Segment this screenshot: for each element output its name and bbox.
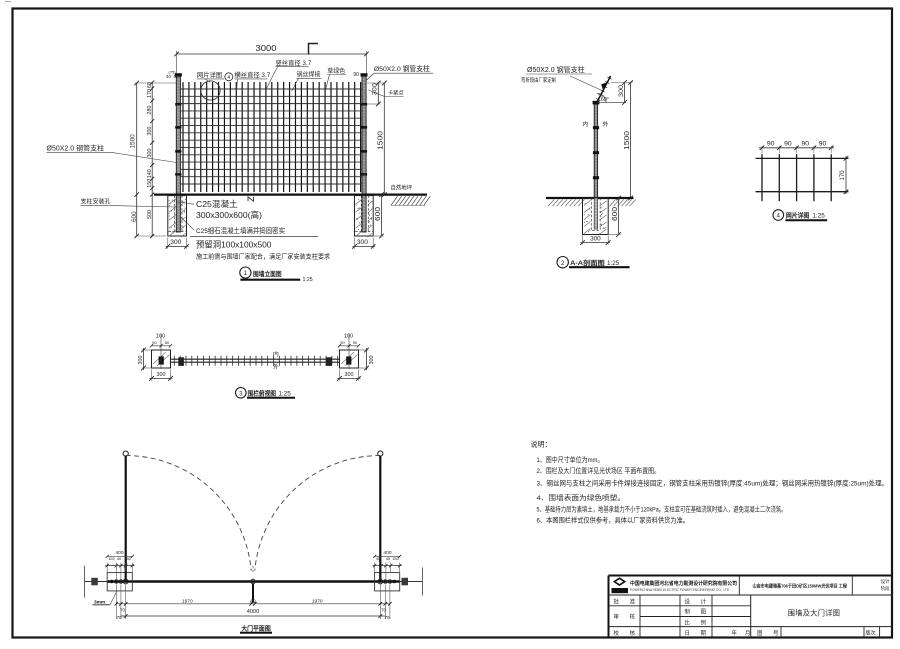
svg-text:批 准: 批 准 bbox=[614, 597, 640, 605]
svg-text:85: 85 bbox=[376, 556, 380, 561]
svg-text:内: 内 bbox=[273, 350, 279, 358]
svg-text:竖丝直径 3.7: 竖丝直径 3.7 bbox=[276, 58, 312, 67]
svg-text:300x300x600(高): 300x300x600(高) bbox=[196, 209, 262, 220]
svg-text:1500: 1500 bbox=[378, 131, 385, 150]
svg-text:150: 150 bbox=[108, 556, 115, 561]
svg-text:4: 4 bbox=[227, 75, 230, 81]
svg-text:月: 月 bbox=[745, 630, 750, 637]
svg-text:300: 300 bbox=[138, 356, 144, 365]
svg-text:170: 170 bbox=[147, 89, 153, 98]
svg-text:90: 90 bbox=[819, 140, 827, 147]
svg-text:60: 60 bbox=[250, 598, 256, 604]
svg-text:300: 300 bbox=[618, 84, 625, 97]
svg-text:50: 50 bbox=[353, 340, 358, 345]
svg-text:150: 150 bbox=[147, 179, 153, 188]
svg-text:40: 40 bbox=[166, 74, 171, 79]
svg-text:1:25: 1:25 bbox=[813, 213, 826, 220]
svg-text:Ø50X2.0 钢管支柱: Ø50X2.0 钢管支柱 bbox=[527, 65, 585, 74]
svg-text:草绿色: 草绿色 bbox=[327, 67, 345, 75]
svg-text:300: 300 bbox=[345, 372, 354, 378]
svg-text:外: 外 bbox=[603, 120, 609, 128]
svg-text:围墙及大门详图: 围墙及大门详图 bbox=[788, 609, 840, 618]
svg-text:1: 1 bbox=[244, 270, 248, 277]
svg-text:90: 90 bbox=[801, 140, 809, 147]
svg-text:2: 2 bbox=[561, 260, 565, 267]
svg-text:钢丝焊接: 钢丝焊接 bbox=[297, 71, 321, 79]
svg-text:Ø50X2.0 钢管支柱: Ø50X2.0 钢管支柱 bbox=[374, 64, 430, 73]
svg-text:300: 300 bbox=[147, 127, 153, 136]
svg-text:大门平面图: 大门平面图 bbox=[241, 623, 270, 632]
svg-text:100: 100 bbox=[344, 334, 353, 340]
svg-text:设计: 设计 bbox=[881, 578, 890, 585]
svg-text:85: 85 bbox=[126, 556, 130, 561]
svg-text:60: 60 bbox=[174, 74, 179, 79]
svg-text:网片详图: 网片详图 bbox=[197, 70, 222, 79]
svg-text:150: 150 bbox=[392, 556, 399, 561]
svg-text:90: 90 bbox=[767, 140, 775, 147]
svg-text:90: 90 bbox=[784, 140, 792, 147]
svg-text:60°: 60° bbox=[601, 97, 609, 103]
svg-text:施工前需与围墙厂家配合，满足厂家安装支柱要求: 施工前需与围墙厂家配合，满足厂家安装支柱要求 bbox=[196, 251, 331, 260]
svg-text:50: 50 bbox=[165, 340, 170, 345]
svg-text:1、图中尺寸单位为mm。: 1、图中尺寸单位为mm。 bbox=[537, 455, 604, 464]
svg-text:设 计: 设 计 bbox=[685, 597, 711, 605]
svg-text:制 图: 制 图 bbox=[685, 608, 711, 616]
svg-text:70: 70 bbox=[116, 615, 122, 620]
svg-text:横丝直径 3.7: 横丝直径 3.7 bbox=[235, 70, 271, 79]
svg-text:预留洞100x100x500: 预留洞100x100x500 bbox=[196, 240, 272, 250]
svg-text:300: 300 bbox=[147, 149, 153, 158]
svg-text:审 核: 审 核 bbox=[614, 613, 640, 621]
svg-text:山金市电建雅基706于田D矿区150MW光伏项目 工程: 山金市电建雅基706于田D矿区150MW光伏项目 工程 bbox=[753, 582, 848, 589]
svg-text:POWERCHINA HEBEI ELECTRIC POWE: POWERCHINA HEBEI ELECTRIC POWER ENGINEER… bbox=[630, 588, 730, 592]
svg-text:300: 300 bbox=[357, 239, 368, 246]
svg-text:1970: 1970 bbox=[312, 598, 323, 604]
svg-text:支柱安装孔: 支柱安装孔 bbox=[81, 197, 111, 205]
svg-text:1970: 1970 bbox=[182, 598, 193, 604]
svg-text:1:25: 1:25 bbox=[607, 260, 620, 267]
svg-text:300: 300 bbox=[372, 82, 378, 95]
svg-text:400: 400 bbox=[383, 550, 391, 556]
svg-text:600: 600 bbox=[612, 207, 619, 221]
svg-text:比 例: 比 例 bbox=[685, 618, 711, 626]
svg-text:140: 140 bbox=[147, 169, 153, 178]
svg-text:图 号: 图 号 bbox=[757, 629, 783, 637]
svg-text:版次: 版次 bbox=[866, 630, 876, 637]
svg-text:C25细石混凝土填满并捣固密实: C25细石混凝土填满并捣固密实 bbox=[196, 226, 285, 235]
svg-text:5、基础持力层为素填土，地基承载力不小于120kPa。支柱宜: 5、基础持力层为素填土，地基承载力不小于120kPa。支柱宜可在基础浇筑时插入，… bbox=[537, 505, 787, 514]
svg-text:Ø50X2.0 钢管支柱: Ø50X2.0 钢管支柱 bbox=[47, 144, 105, 153]
svg-text:围栏俯视图: 围栏俯视图 bbox=[248, 388, 277, 397]
svg-text:400: 400 bbox=[115, 550, 123, 556]
svg-text:3、钢丝网与支柱之间采用卡件焊接连接固定，钢管支柱采用热镀锌: 3、钢丝网与支柱之间采用卡件焊接连接固定，钢管支柱采用热镀锌(厚度:45um)处… bbox=[537, 478, 889, 487]
svg-text:6、本图围栏样式仅供参考，具体以厂家资料供货为准。: 6、本图围栏样式仅供参考，具体以厂家资料供货为准。 bbox=[537, 516, 690, 525]
svg-text:网片详图: 网片详图 bbox=[786, 211, 810, 220]
svg-text:A-A剖面图: A-A剖面图 bbox=[570, 258, 605, 267]
svg-text:500: 500 bbox=[147, 210, 153, 219]
svg-text:日 期: 日 期 bbox=[685, 630, 711, 637]
svg-text:1500: 1500 bbox=[624, 131, 631, 150]
svg-text:校 核: 校 核 bbox=[614, 629, 640, 637]
svg-text:围墙立面图: 围墙立面图 bbox=[253, 269, 282, 278]
svg-text:280: 280 bbox=[147, 106, 153, 115]
svg-text:90: 90 bbox=[353, 72, 359, 78]
svg-text:中国电建集团河北省电力勘测设计研究院有限公司: 中国电建集团河北省电力勘测设计研究院有限公司 bbox=[630, 579, 737, 587]
svg-text:70: 70 bbox=[384, 615, 390, 620]
svg-text:卡紧点: 卡紧点 bbox=[388, 89, 404, 97]
svg-text:600: 600 bbox=[131, 211, 138, 222]
svg-text:自然地坪: 自然地坪 bbox=[391, 184, 413, 192]
svg-text:300: 300 bbox=[157, 372, 166, 378]
svg-text:600: 600 bbox=[375, 207, 382, 221]
svg-text:4000: 4000 bbox=[247, 609, 259, 615]
svg-text:3000: 3000 bbox=[256, 44, 278, 53]
svg-text:内: 内 bbox=[583, 120, 589, 128]
svg-text:300: 300 bbox=[369, 356, 375, 365]
svg-text:170: 170 bbox=[840, 170, 846, 181]
svg-text:100: 100 bbox=[156, 334, 165, 340]
svg-text:年: 年 bbox=[732, 629, 738, 637]
svg-text:弯折段由厂家定制: 弯折段由厂家定制 bbox=[521, 76, 556, 84]
svg-text:说明：: 说明： bbox=[531, 440, 552, 449]
svg-text:(75): (75) bbox=[169, 69, 177, 74]
svg-text:70: 70 bbox=[381, 608, 387, 613]
svg-text:1500: 1500 bbox=[130, 134, 137, 149]
svg-text:1:25: 1:25 bbox=[303, 277, 313, 283]
svg-text:300: 300 bbox=[590, 236, 601, 243]
svg-text:阶段: 阶段 bbox=[881, 585, 890, 592]
svg-text:外: 外 bbox=[273, 363, 279, 371]
svg-text:60: 60 bbox=[147, 82, 153, 88]
svg-text:70: 70 bbox=[120, 608, 126, 613]
svg-text:300: 300 bbox=[170, 239, 181, 246]
svg-text:1:25: 1:25 bbox=[279, 390, 292, 397]
svg-text:4、围墙表面为绿色喷塑。: 4、围墙表面为绿色喷塑。 bbox=[537, 493, 626, 502]
svg-text:2、围栏及大门位置详见光伏场区 平面布置图。: 2、围栏及大门位置详见光伏场区 平面布置图。 bbox=[537, 466, 661, 475]
svg-text:C25混凝土: C25混凝土 bbox=[196, 198, 238, 209]
